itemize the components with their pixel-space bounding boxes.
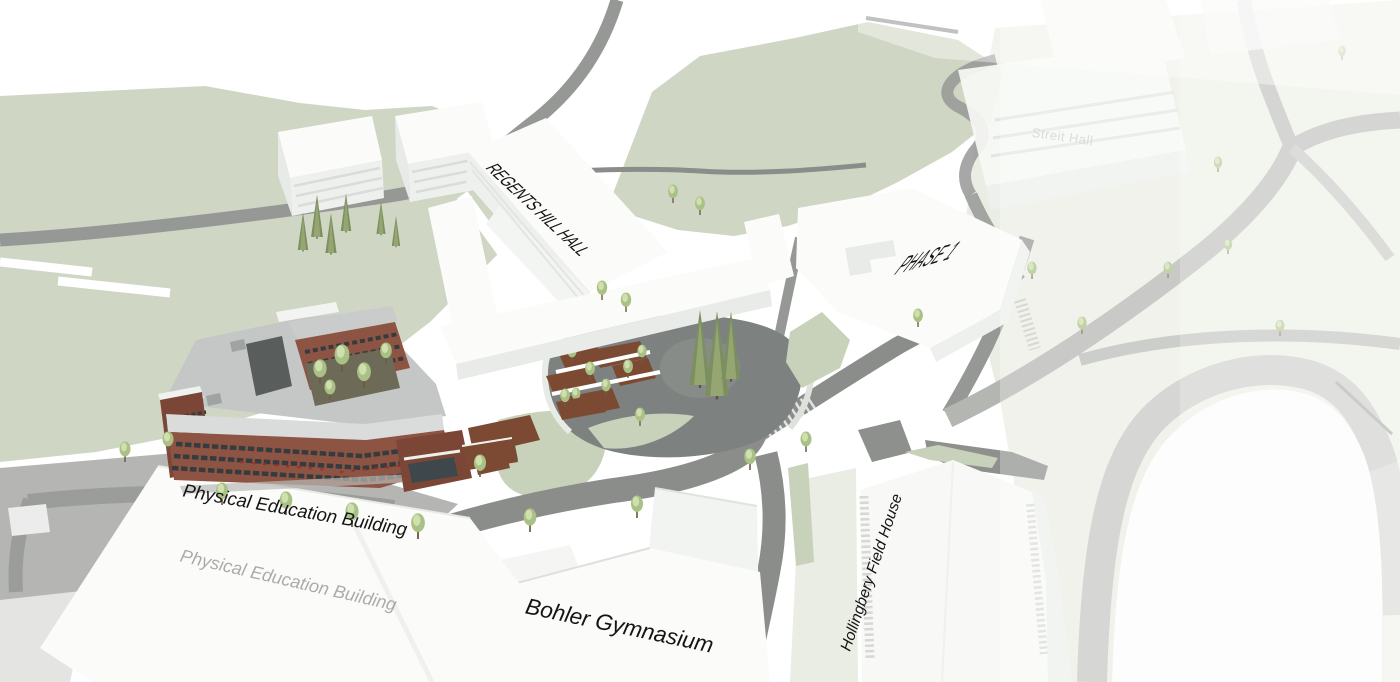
rendering-canvas: REGENTS HILL HALL PHASE 1 Streit Hall Ph… xyxy=(0,0,1400,682)
campus-aerial-rendering: REGENTS HILL HALL PHASE 1 Streit Hall Ph… xyxy=(0,0,1400,682)
parking-island xyxy=(8,504,50,536)
building-block-northwest-a xyxy=(278,116,384,216)
